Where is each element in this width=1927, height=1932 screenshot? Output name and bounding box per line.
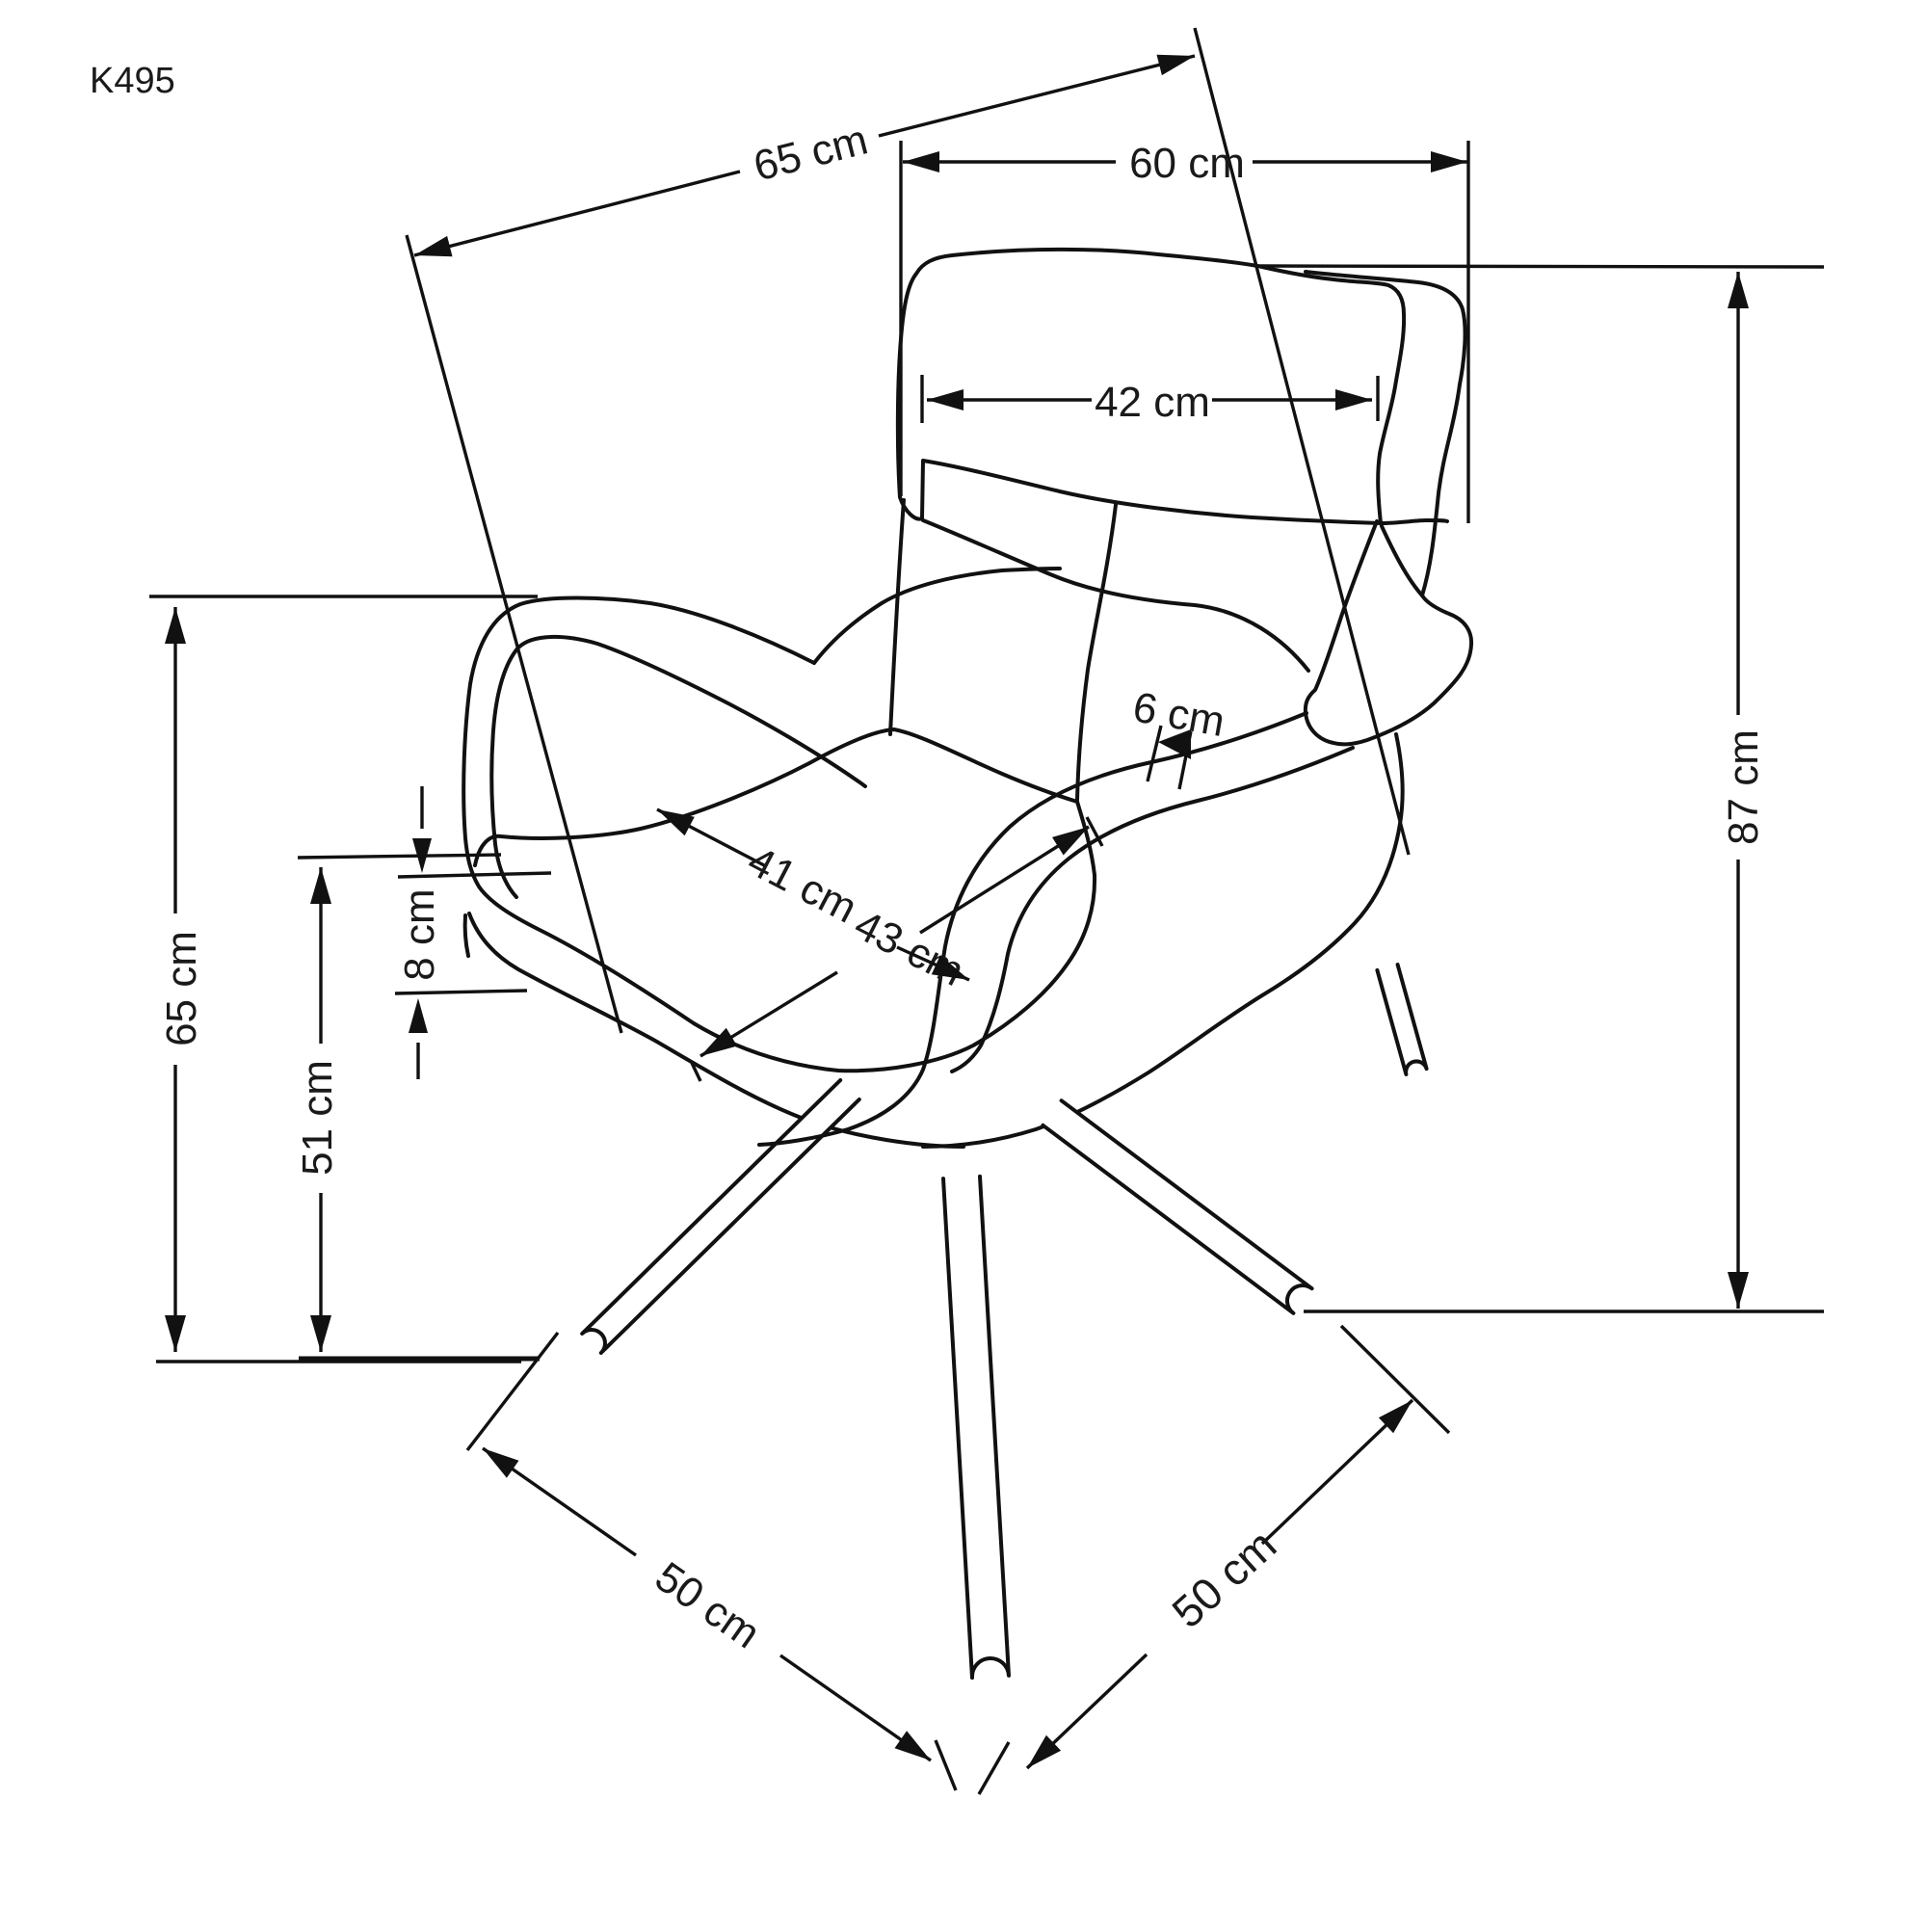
svg-text:K495: K495	[90, 61, 175, 101]
svg-text:65 cm: 65 cm	[158, 931, 205, 1046]
svg-text:51 cm: 51 cm	[294, 1060, 341, 1176]
svg-text:60 cm: 60 cm	[1129, 140, 1245, 187]
svg-text:42 cm: 42 cm	[1095, 379, 1210, 426]
svg-text:87 cm: 87 cm	[1720, 729, 1767, 845]
svg-text:8 cm: 8 cm	[396, 888, 443, 980]
